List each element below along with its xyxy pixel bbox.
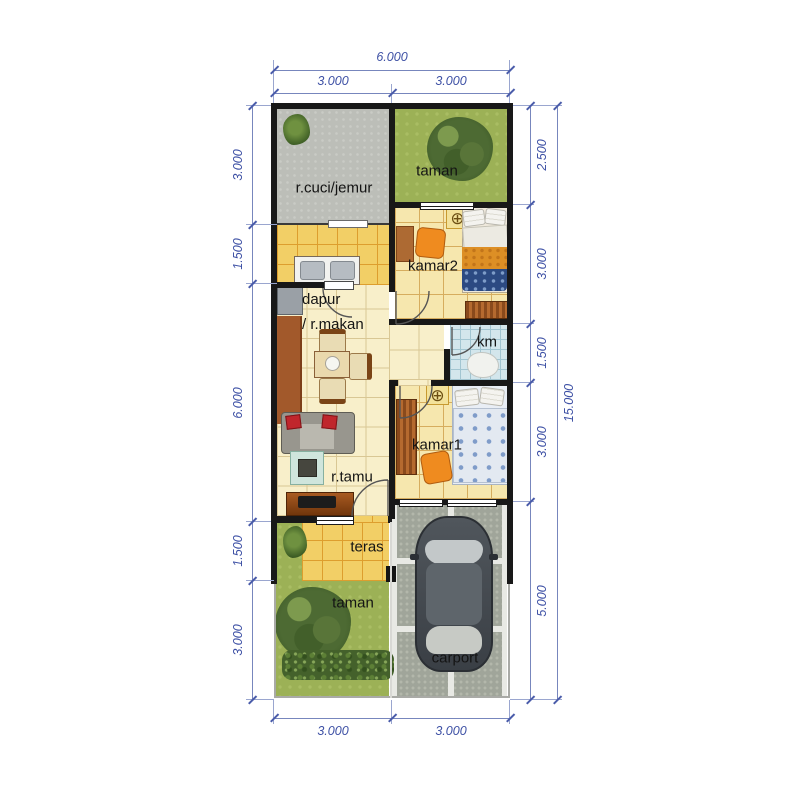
tv bbox=[298, 496, 336, 508]
dim-label-left-4: 1.500 bbox=[231, 535, 245, 566]
dim-label-right-4: 3.000 bbox=[535, 426, 549, 457]
bed2-blanket-blue bbox=[462, 269, 507, 291]
dim-extension bbox=[509, 700, 510, 724]
wall-laundry-garden-divider bbox=[389, 106, 395, 205]
label-laundry: r.cuci/jemur bbox=[296, 180, 373, 197]
label-living: r.tamu bbox=[331, 469, 373, 486]
dim-extension bbox=[510, 699, 562, 700]
dim-label-top-total: 6.000 bbox=[376, 50, 407, 64]
dim-label-right-1: 2.500 bbox=[535, 139, 549, 170]
dim-label-right-3: 1.500 bbox=[535, 337, 549, 368]
dim-tick bbox=[506, 713, 515, 722]
floor-plan-canvas: ⊕ ⊕ bbox=[0, 0, 800, 800]
label-garden-bottom: taman bbox=[332, 595, 374, 612]
dining-chair bbox=[319, 378, 346, 404]
dim-tick bbox=[506, 65, 515, 74]
dim-label-top-left: 3.000 bbox=[317, 74, 348, 88]
dim-extension bbox=[391, 700, 392, 724]
fence-left bbox=[274, 584, 276, 698]
dim-label-left-1: 3.000 bbox=[231, 149, 245, 180]
fence-right bbox=[508, 584, 510, 698]
garden-hedge bbox=[282, 650, 394, 680]
wall-bedroom2-left bbox=[389, 205, 395, 292]
bed2-pillow bbox=[484, 208, 507, 226]
sliding-door bbox=[328, 220, 368, 228]
window-bedroom1-front bbox=[447, 499, 497, 507]
dim-extension bbox=[273, 700, 274, 724]
bedroom1-chair bbox=[420, 450, 454, 486]
dim-label-left-3: 6.000 bbox=[231, 387, 245, 418]
sink-basin bbox=[300, 261, 325, 280]
terrace-carport-divider bbox=[390, 522, 392, 698]
dim-label-right-5: 5.000 bbox=[535, 585, 549, 616]
door-arc-bedroom1 bbox=[399, 385, 433, 419]
sofa-cushion bbox=[321, 414, 337, 429]
sofa-cushion bbox=[285, 414, 302, 430]
dim-label-right-total: 15.000 bbox=[562, 384, 576, 422]
dim-extension bbox=[273, 60, 274, 103]
dim-label-top-right: 3.000 bbox=[435, 74, 466, 88]
terrace-plant bbox=[283, 526, 307, 558]
fence-bottom bbox=[274, 696, 510, 698]
sink-basin bbox=[330, 261, 355, 280]
label-bedroom2: kamar2 bbox=[408, 258, 458, 275]
bed1-pillow bbox=[479, 386, 505, 406]
car-mirror bbox=[410, 554, 419, 560]
car-mirror bbox=[489, 554, 498, 560]
label-carport: carport bbox=[432, 650, 479, 667]
dining-plate bbox=[325, 356, 340, 371]
dim-label-bottom-left: 3.000 bbox=[317, 724, 348, 738]
label-terrace: teras bbox=[350, 539, 383, 556]
dining-chair bbox=[349, 353, 372, 380]
coffee-table-top bbox=[298, 459, 317, 477]
dim-label-right-2: 3.000 bbox=[535, 248, 549, 279]
label-bathroom: km bbox=[477, 334, 497, 351]
wall-plot-left bbox=[271, 103, 277, 584]
label-kitchen-line1: dapur bbox=[302, 287, 364, 312]
dim-line-right-total bbox=[557, 106, 558, 700]
window-living-front bbox=[316, 516, 354, 525]
bedroom2-chair bbox=[415, 227, 447, 260]
label-bedroom1: kamar1 bbox=[412, 437, 462, 454]
dim-extension bbox=[509, 60, 510, 103]
bed2-blanket-orange bbox=[462, 247, 507, 271]
dim-label-left-2: 1.500 bbox=[231, 238, 245, 269]
kitchen-counter bbox=[277, 316, 302, 424]
dim-line-left bbox=[252, 106, 253, 700]
fridge bbox=[277, 286, 303, 315]
laundry-plant bbox=[283, 114, 310, 145]
dim-line-right bbox=[530, 106, 531, 700]
car-roof bbox=[426, 563, 482, 625]
window-bedroom1-front bbox=[399, 499, 443, 507]
label-kitchen: dapur / r.makan bbox=[302, 287, 364, 337]
hallway-floor bbox=[389, 325, 444, 380]
label-garden-top: taman bbox=[416, 163, 458, 180]
dim-tick bbox=[506, 88, 515, 97]
wall-bathroom-left bbox=[444, 349, 450, 383]
dim-line-top-total bbox=[274, 70, 510, 71]
dim-label-bottom-right: 3.000 bbox=[435, 724, 466, 738]
dim-label-left-5: 3.000 bbox=[231, 624, 245, 655]
car-windshield bbox=[425, 540, 483, 564]
door-gap-front bbox=[352, 516, 388, 523]
wall-plot-right bbox=[507, 103, 513, 584]
label-kitchen-line2: / r.makan bbox=[302, 312, 364, 337]
bed1-pillow bbox=[454, 388, 480, 408]
door-arc-bedroom2 bbox=[395, 290, 430, 325]
bed2-pillow bbox=[462, 209, 486, 228]
bedroom2-wardrobe bbox=[465, 301, 509, 319]
window-bedroom2 bbox=[420, 202, 474, 210]
